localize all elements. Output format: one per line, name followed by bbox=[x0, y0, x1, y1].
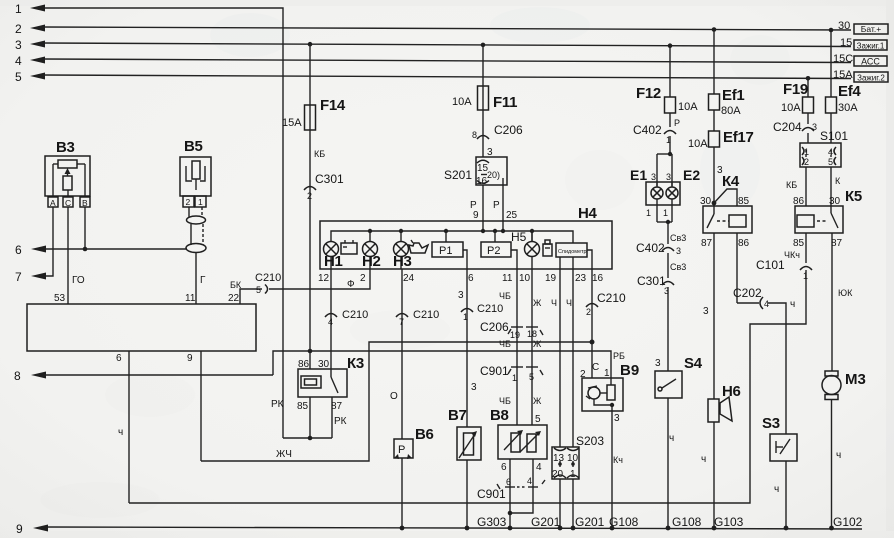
svg-text:3: 3 bbox=[458, 290, 464, 301]
svg-text:4: 4 bbox=[764, 299, 769, 309]
svg-text:G103: G103 bbox=[714, 515, 744, 529]
svg-text:Ef1: Ef1 bbox=[722, 87, 744, 104]
svg-text:5: 5 bbox=[529, 372, 534, 382]
svg-text:7: 7 bbox=[399, 317, 404, 327]
svg-text:10А: 10А bbox=[781, 102, 801, 114]
svg-text:1: 1 bbox=[512, 373, 517, 383]
svg-text:РБ: РБ bbox=[613, 351, 625, 361]
svg-text:85: 85 bbox=[793, 238, 805, 249]
svg-text:Р: Р bbox=[493, 200, 500, 211]
svg-text:Е1: Е1 bbox=[630, 167, 647, 183]
svg-text:РК: РК bbox=[334, 416, 347, 427]
svg-text:С: С bbox=[65, 198, 71, 208]
svg-text:3: 3 bbox=[651, 172, 656, 182]
svg-text:30: 30 bbox=[318, 359, 330, 370]
svg-text:22: 22 bbox=[228, 293, 240, 304]
svg-text:Р2: Р2 bbox=[487, 245, 500, 257]
svg-text:1: 1 bbox=[570, 469, 576, 480]
svg-text:1: 1 bbox=[646, 208, 651, 218]
svg-text:16: 16 bbox=[592, 273, 604, 284]
svg-text:G102: G102 bbox=[833, 515, 863, 529]
svg-text:10А: 10А bbox=[688, 138, 708, 150]
svg-text:ч: ч bbox=[669, 433, 674, 444]
svg-text:4: 4 bbox=[527, 476, 532, 486]
svg-text:С210: С210 bbox=[477, 303, 503, 315]
svg-text:ЖЧ: ЖЧ bbox=[276, 449, 292, 460]
svg-text:РК: РК bbox=[271, 399, 284, 410]
svg-text:Бат.+: Бат.+ bbox=[861, 24, 881, 34]
svg-text:1: 1 bbox=[463, 312, 468, 322]
svg-text:S201: S201 bbox=[444, 168, 472, 182]
svg-text:Н5: Н5 bbox=[511, 230, 527, 244]
svg-text:ЮК: ЮК bbox=[838, 288, 853, 298]
svg-text:S101: S101 bbox=[820, 129, 848, 143]
svg-text:В: В bbox=[82, 198, 88, 208]
svg-text:ч: ч bbox=[836, 450, 841, 461]
svg-text:G201: G201 bbox=[575, 515, 605, 529]
svg-text:К: К bbox=[835, 176, 841, 186]
svg-text:Св3: Св3 bbox=[670, 233, 686, 243]
svg-text:8: 8 bbox=[472, 130, 477, 140]
svg-text:2: 2 bbox=[186, 197, 191, 207]
svg-text:С204: С204 bbox=[773, 120, 802, 134]
svg-text:16: 16 bbox=[476, 176, 488, 187]
svg-text:4: 4 bbox=[15, 54, 22, 68]
svg-text:86: 86 bbox=[298, 359, 310, 370]
svg-text:Ef17: Ef17 bbox=[723, 129, 754, 146]
svg-text:ЧБ: ЧБ bbox=[499, 396, 511, 406]
svg-text:Ч: Ч bbox=[551, 298, 557, 308]
svg-text:К3: К3 bbox=[347, 355, 364, 372]
svg-text:ч: ч bbox=[774, 484, 779, 495]
svg-text:ч: ч bbox=[118, 427, 123, 438]
svg-text:20: 20 bbox=[552, 469, 564, 480]
svg-text:Ф: Ф bbox=[347, 279, 355, 290]
svg-text:Ж: Ж bbox=[533, 339, 542, 349]
svg-text:1: 1 bbox=[803, 271, 808, 281]
svg-text:Кч: Кч bbox=[613, 455, 623, 465]
svg-text:6: 6 bbox=[15, 243, 22, 257]
svg-text:2: 2 bbox=[360, 273, 366, 284]
svg-text:КБ: КБ bbox=[786, 180, 797, 190]
svg-text:В5: В5 bbox=[184, 138, 203, 155]
svg-text:С901: С901 bbox=[480, 364, 509, 378]
svg-text:5: 5 bbox=[15, 70, 22, 84]
svg-text:Р1: Р1 bbox=[439, 245, 452, 257]
svg-text:86: 86 bbox=[793, 196, 805, 207]
svg-text:С402: С402 bbox=[636, 241, 665, 255]
svg-text:К4: К4 bbox=[722, 173, 740, 190]
svg-text:С210: С210 bbox=[342, 309, 368, 321]
svg-text:Н4: Н4 bbox=[578, 205, 598, 222]
svg-text:G108: G108 bbox=[609, 515, 639, 529]
svg-text:Р: Р bbox=[674, 118, 680, 128]
svg-text:30: 30 bbox=[838, 20, 850, 32]
svg-text:15: 15 bbox=[840, 37, 852, 49]
svg-text:10: 10 bbox=[519, 273, 531, 284]
svg-text:О: О bbox=[390, 391, 398, 402]
svg-text:19: 19 bbox=[510, 330, 520, 340]
svg-text:ЧБ: ЧБ bbox=[499, 339, 511, 349]
svg-text:2: 2 bbox=[586, 307, 591, 317]
svg-text:1: 1 bbox=[198, 197, 203, 207]
svg-text:М3: М3 bbox=[845, 371, 866, 388]
svg-text:9: 9 bbox=[473, 210, 479, 221]
svg-text:4: 4 bbox=[536, 462, 542, 473]
svg-text:С301: С301 bbox=[315, 172, 344, 186]
svg-text:2: 2 bbox=[15, 22, 22, 36]
svg-text:30: 30 bbox=[700, 196, 712, 207]
svg-text:11: 11 bbox=[502, 273, 513, 284]
svg-text:Ef4: Ef4 bbox=[838, 83, 861, 100]
svg-text:9: 9 bbox=[187, 353, 193, 364]
svg-text:5: 5 bbox=[828, 157, 833, 167]
svg-text:Н2: Н2 bbox=[362, 253, 381, 270]
svg-text:3: 3 bbox=[614, 413, 620, 424]
svg-text:87: 87 bbox=[331, 401, 343, 412]
svg-text:ЧБ: ЧБ bbox=[499, 291, 511, 301]
svg-text:С402: С402 bbox=[633, 123, 662, 137]
svg-text:F14: F14 bbox=[320, 97, 346, 114]
svg-text:9: 9 bbox=[16, 522, 23, 536]
svg-text:5: 5 bbox=[535, 414, 541, 425]
svg-text:6: 6 bbox=[506, 477, 511, 487]
svg-text:15A: 15A bbox=[833, 69, 853, 81]
svg-text:86: 86 bbox=[738, 238, 750, 249]
svg-text:3: 3 bbox=[703, 306, 709, 317]
svg-text:6: 6 bbox=[116, 353, 122, 364]
svg-text:6: 6 bbox=[501, 462, 507, 473]
svg-text:6: 6 bbox=[468, 273, 474, 284]
svg-text:ч: ч bbox=[790, 299, 795, 310]
svg-text:85: 85 bbox=[738, 196, 750, 207]
svg-text:Зажиг.1: Зажиг.1 bbox=[857, 42, 885, 51]
svg-text:Н1: Н1 bbox=[324, 253, 343, 270]
svg-text:F19: F19 bbox=[783, 81, 808, 98]
svg-text:2: 2 bbox=[307, 191, 312, 201]
svg-text:В3: В3 bbox=[56, 139, 75, 156]
svg-text:S4: S4 bbox=[684, 355, 703, 372]
svg-text:S3: S3 bbox=[762, 415, 780, 432]
svg-text:Е2: Е2 bbox=[683, 167, 700, 183]
svg-text:12: 12 bbox=[318, 273, 330, 284]
svg-text:3: 3 bbox=[676, 246, 681, 256]
svg-text:19: 19 bbox=[545, 273, 557, 284]
svg-text:3: 3 bbox=[471, 382, 477, 393]
svg-text:F12: F12 bbox=[636, 85, 661, 102]
svg-text:10А: 10А bbox=[678, 101, 698, 113]
svg-text:Н3: Н3 bbox=[393, 253, 412, 270]
svg-text:87: 87 bbox=[701, 238, 713, 249]
svg-text:С202: С202 bbox=[733, 286, 762, 300]
svg-text:25: 25 bbox=[506, 210, 518, 221]
svg-text:3: 3 bbox=[812, 122, 817, 132]
svg-text:С301: С301 bbox=[637, 274, 666, 288]
svg-text:К5: К5 bbox=[845, 188, 862, 205]
svg-text:ЧКч: ЧКч bbox=[784, 250, 800, 260]
svg-text:30: 30 bbox=[829, 196, 841, 207]
svg-text:С210: С210 bbox=[413, 309, 439, 321]
svg-text:С210: С210 bbox=[597, 291, 626, 305]
svg-text:G201: G201 bbox=[531, 515, 561, 529]
svg-text:ГО: ГО bbox=[72, 275, 85, 286]
svg-text:S203: S203 bbox=[576, 434, 604, 448]
svg-text:Ж: Ж bbox=[533, 298, 542, 308]
svg-text:5: 5 bbox=[256, 285, 261, 295]
svg-text:85: 85 bbox=[297, 401, 309, 412]
svg-text:С206: С206 bbox=[480, 320, 509, 334]
svg-text:8: 8 bbox=[14, 369, 21, 383]
svg-text:Зажиг.2: Зажиг.2 bbox=[857, 74, 885, 83]
svg-text:87: 87 bbox=[831, 238, 843, 249]
svg-text:ч: ч bbox=[701, 454, 706, 465]
svg-text:15C: 15C bbox=[833, 53, 853, 65]
svg-text:С210: С210 bbox=[255, 272, 281, 284]
svg-text:3: 3 bbox=[666, 172, 671, 182]
svg-text:С101: С101 bbox=[756, 258, 785, 272]
svg-text:Ж: Ж bbox=[533, 396, 542, 406]
svg-text:1: 1 bbox=[663, 208, 668, 218]
svg-text:Р: Р bbox=[398, 444, 405, 456]
svg-text:Св3: Св3 bbox=[670, 262, 686, 272]
svg-text:13: 13 bbox=[553, 453, 565, 464]
svg-text:53: 53 bbox=[54, 293, 66, 304]
svg-text:Ч: Ч bbox=[566, 298, 572, 308]
svg-text:80А: 80А bbox=[721, 105, 741, 117]
svg-text:АСС: АСС bbox=[861, 57, 880, 67]
svg-text:20): 20) bbox=[487, 170, 500, 180]
svg-text:КБ: КБ bbox=[314, 149, 325, 159]
svg-text:15А: 15А bbox=[282, 117, 302, 129]
svg-text:23: 23 bbox=[575, 273, 587, 284]
svg-text:С206: С206 bbox=[494, 123, 523, 137]
svg-text:Г: Г bbox=[200, 275, 206, 286]
svg-text:2: 2 bbox=[804, 157, 809, 167]
svg-text:А: А bbox=[50, 198, 56, 208]
svg-text:3: 3 bbox=[655, 358, 661, 369]
svg-text:18: 18 bbox=[527, 329, 537, 339]
svg-text:F11: F11 bbox=[493, 94, 517, 111]
svg-text:С901: С901 bbox=[477, 487, 506, 501]
svg-text:4: 4 bbox=[328, 317, 333, 327]
svg-text:11: 11 bbox=[185, 293, 196, 304]
svg-text:G303: G303 bbox=[477, 515, 507, 529]
svg-text:24: 24 bbox=[403, 273, 415, 284]
svg-text:Н6: Н6 bbox=[722, 383, 741, 400]
svg-text:G108: G108 bbox=[672, 515, 702, 529]
svg-text:3: 3 bbox=[15, 38, 22, 52]
svg-text:7: 7 bbox=[15, 270, 22, 284]
svg-text:В8: В8 bbox=[490, 407, 509, 424]
svg-text:10А: 10А bbox=[452, 96, 472, 108]
svg-text:С: С bbox=[592, 362, 599, 373]
svg-text:В9: В9 bbox=[620, 362, 639, 379]
svg-text:30А: 30А bbox=[838, 102, 858, 114]
svg-text:1: 1 bbox=[15, 2, 22, 16]
svg-text:В6: В6 bbox=[415, 426, 434, 443]
svg-text:Спидометр: Спидометр bbox=[558, 249, 587, 255]
svg-text:В7: В7 bbox=[448, 407, 467, 424]
